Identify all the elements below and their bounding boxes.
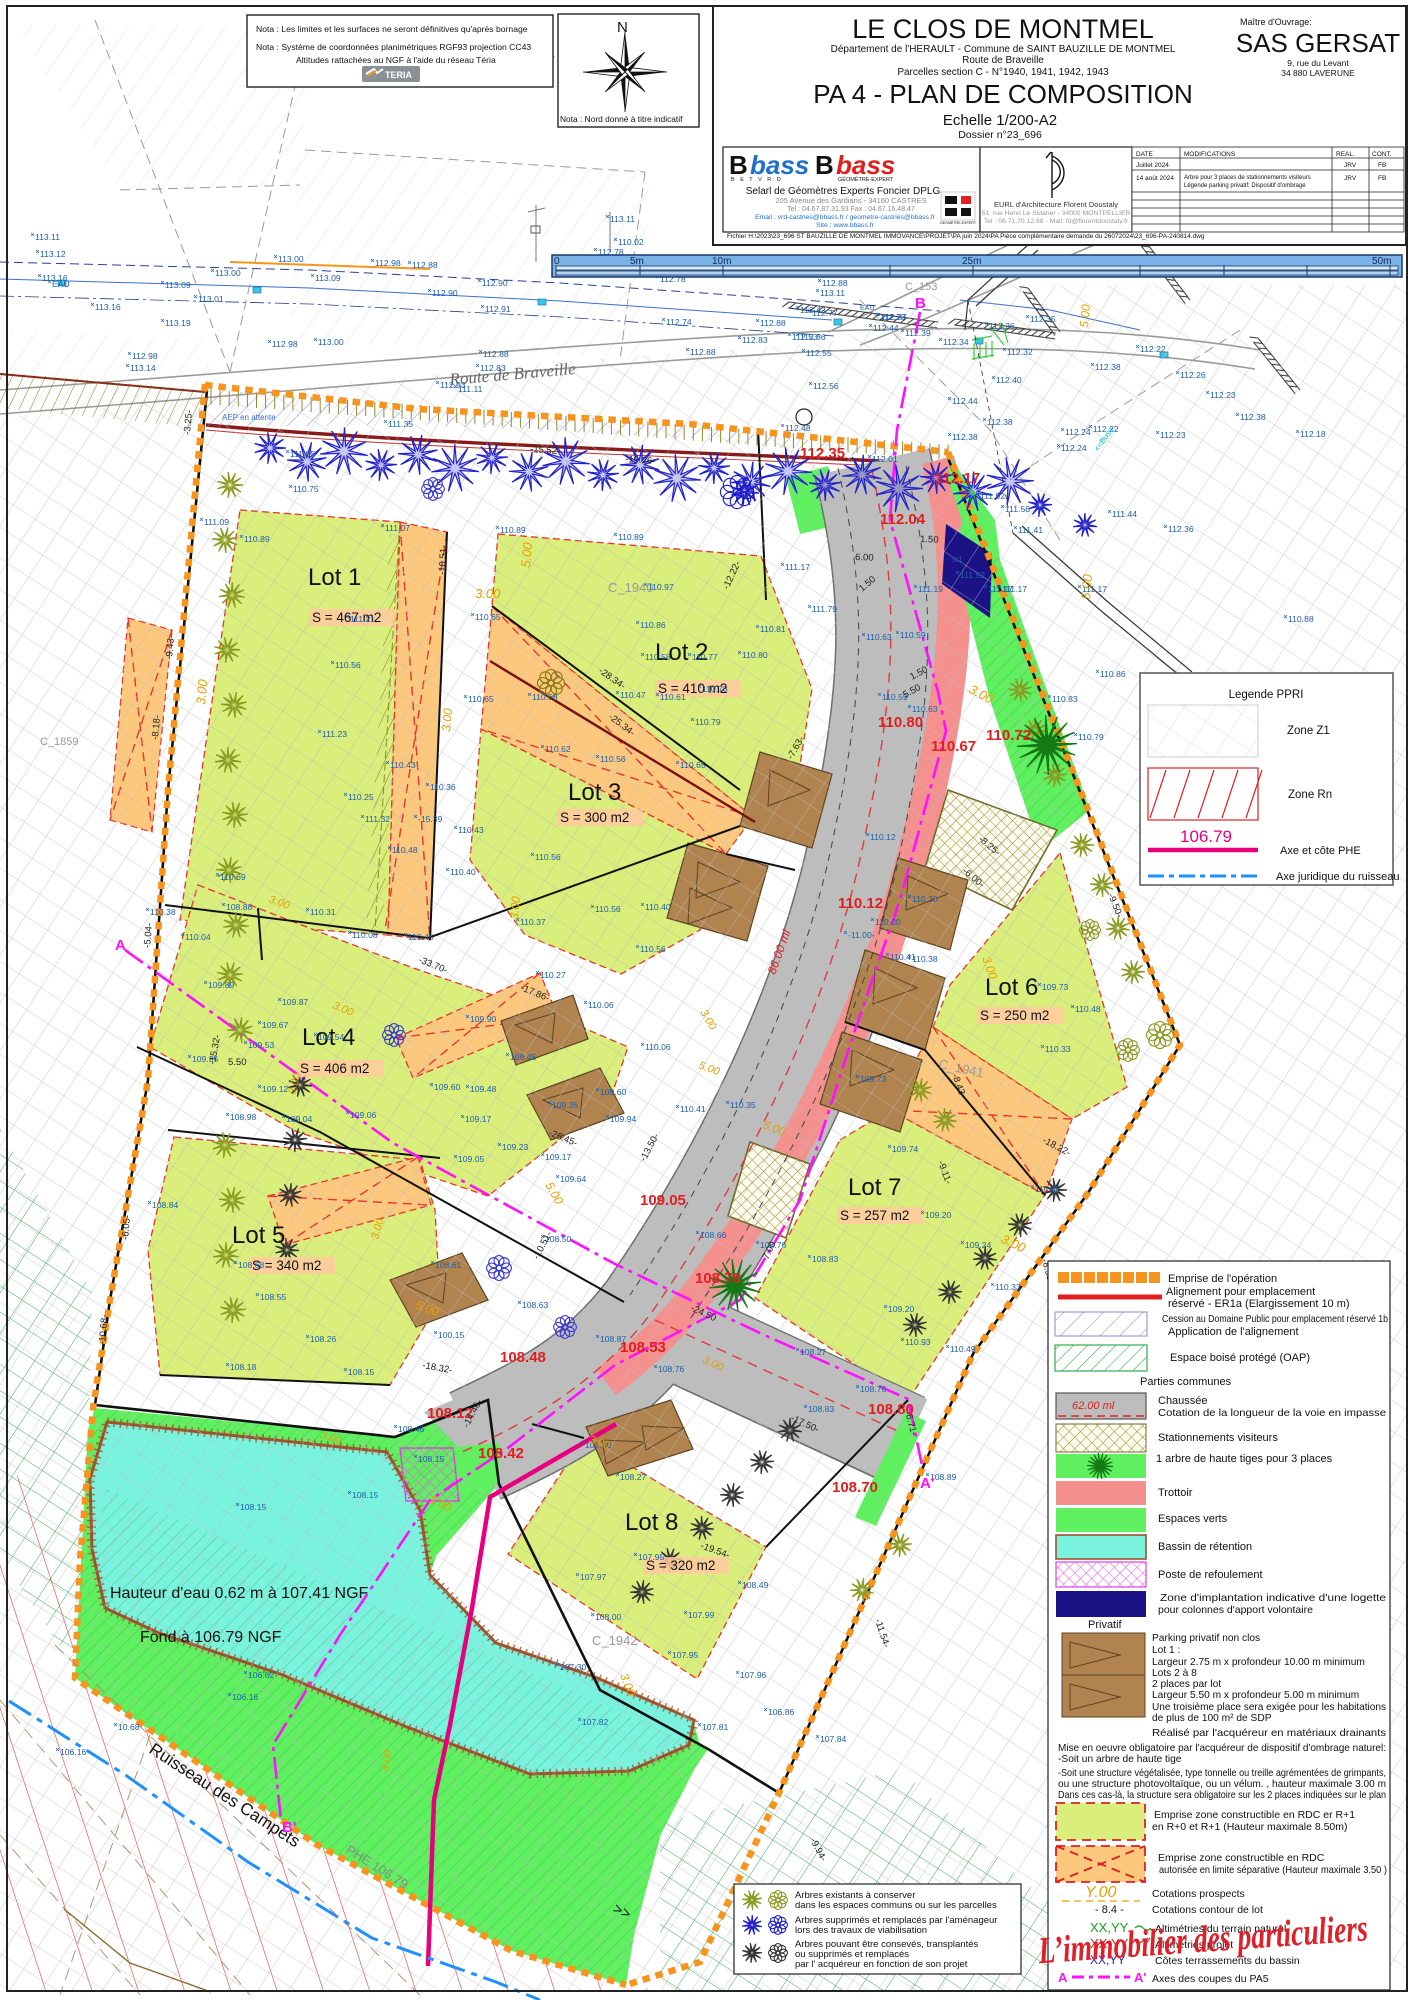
- svg-text:Parties communes: Parties communes: [1140, 1376, 1232, 1388]
- svg-text:Altitudes rattachées au NGF à: Altitudes rattachées au NGF à l'aide du …: [296, 55, 496, 65]
- svg-text:108.84: 108.84: [152, 1200, 179, 1210]
- svg-text:111.21: 111.21: [350, 614, 375, 624]
- svg-text:Juillet 2024: Juillet 2024: [1136, 162, 1169, 169]
- svg-text:Application de l'alignement: Application de l'alignement: [1168, 1326, 1299, 1338]
- svg-text:107.81: 107.81: [702, 1722, 729, 1732]
- svg-text:108.15: 108.15: [418, 1454, 445, 1464]
- svg-text:112.88: 112.88: [822, 278, 848, 288]
- svg-text:110.79: 110.79: [1078, 732, 1104, 742]
- svg-text:109.54: 109.54: [318, 1032, 345, 1042]
- svg-text:110.06: 110.06: [645, 1042, 671, 1052]
- svg-text:-Soit un arbre de haute tige: -Soit un arbre de haute tige: [1058, 1754, 1182, 1765]
- svg-text:110.56: 110.56: [640, 944, 666, 954]
- svg-text:REAL.: REAL.: [1336, 151, 1355, 158]
- svg-text:112.38: 112.38: [952, 432, 978, 442]
- svg-text:109.89: 109.89: [208, 980, 235, 990]
- svg-text:109.73: 109.73: [1042, 982, 1069, 992]
- svg-text:110.63: 110.63: [912, 704, 938, 714]
- svg-text:112.56: 112.56: [813, 381, 839, 391]
- svg-text:110.04: 110.04: [185, 932, 211, 942]
- svg-text:Legende PPRI: Legende PPRI: [1229, 689, 1304, 701]
- svg-text:111.56: 111.56: [1005, 504, 1030, 514]
- svg-text:EAU: EAU: [52, 279, 70, 289]
- svg-text:A: A: [1058, 1970, 1068, 1985]
- svg-text:108.27: 108.27: [620, 1472, 647, 1482]
- svg-text:-15.39: -15.39: [418, 814, 443, 824]
- svg-text:B: B: [729, 150, 748, 180]
- svg-text:108.61: 108.61: [435, 1260, 462, 1270]
- svg-text:S = 250 m2: S = 250 m2: [980, 1008, 1049, 1023]
- svg-text:Trottoir: Trottoir: [1158, 1487, 1193, 1499]
- svg-text:Fichier H:\2023\23_696 ST BAU: Fichier H:\2023\23_696 ST BAUZILLE DE MO…: [727, 233, 1205, 240]
- svg-text:de plus de 100 m² de SDP: de plus de 100 m² de SDP: [1152, 1713, 1272, 1724]
- svg-text:9, rue du Levant: 9, rue du Levant: [1287, 58, 1349, 68]
- svg-text:Privatif: Privatif: [1088, 1619, 1123, 1631]
- svg-text:111.44: 111.44: [1112, 509, 1137, 519]
- svg-text:107.82: 107.82: [582, 1717, 609, 1727]
- svg-text:110.27: 110.27: [540, 970, 566, 980]
- svg-text:111.11: 111.11: [458, 384, 483, 394]
- svg-text:108.68: 108.68: [238, 1260, 265, 1270]
- svg-text:Arbre pour 3 places de statio: Arbre pour 3 places de stationnements vi…: [1184, 175, 1311, 181]
- svg-text:110.58: 110.58: [532, 692, 558, 702]
- svg-text:113.11: 113.11: [820, 288, 845, 298]
- svg-text:-3.25-: -3.25-: [182, 410, 195, 436]
- svg-text:112.42: 112.42: [800, 305, 826, 315]
- svg-text:110.61: 110.61: [660, 692, 686, 702]
- svg-text:TERIA: TERIA: [385, 70, 413, 80]
- svg-text:113.11: 113.11: [35, 232, 60, 242]
- svg-text:Maître d'Ouvrage:: Maître d'Ouvrage:: [1240, 17, 1312, 27]
- svg-text:10.68: 10.68: [118, 1722, 140, 1732]
- svg-text:108.76: 108.76: [860, 1384, 887, 1394]
- svg-text:110.80: 110.80: [878, 714, 923, 731]
- svg-text:110.36: 110.36: [430, 782, 456, 792]
- svg-text:110.89: 110.89: [618, 532, 644, 542]
- svg-text:110.56: 110.56: [595, 904, 621, 914]
- svg-text:113.12: 113.12: [40, 249, 66, 259]
- svg-text:108.83: 108.83: [808, 1404, 835, 1414]
- svg-text:Zone Z1: Zone Z1: [1287, 725, 1330, 737]
- svg-text:SAS GERSAT: SAS GERSAT: [1236, 28, 1400, 58]
- svg-text:autorisée en limite séparative: autorisée en limite séparative (Hauteur …: [1159, 1865, 1387, 1876]
- svg-text:1.50: 1.50: [920, 534, 939, 546]
- svg-text:Tel : 06.71.70.12.68 - Mail: f: Tel : 06.71.70.12.68 - Mail: fd@florentd…: [984, 218, 1129, 225]
- svg-text:109.45: 109.45: [510, 1052, 537, 1062]
- svg-text:109.48: 109.48: [470, 1084, 497, 1094]
- svg-text:112.53: 112.53: [792, 332, 818, 342]
- svg-text:108.00: 108.00: [595, 1612, 622, 1622]
- svg-text:112.38: 112.38: [987, 417, 1013, 427]
- svg-text:51, rue Henri Le Sidaner - 340: 51, rue Henri Le Sidaner - 34000 MONTPEL…: [982, 210, 1131, 217]
- svg-text:113.01: 113.01: [198, 294, 224, 304]
- svg-text:108.18: 108.18: [230, 1362, 257, 1372]
- svg-text:110.48: 110.48: [392, 845, 418, 855]
- svg-text:110.89: 110.89: [244, 534, 270, 544]
- svg-text:ou une structure photovoltaïq: ou une structure photovoltaïque, ou un v…: [1058, 1779, 1386, 1790]
- svg-text:Lot 3: Lot 3: [568, 779, 621, 806]
- svg-text:110.56: 110.56: [535, 852, 561, 862]
- svg-text:108.98: 108.98: [230, 1112, 257, 1122]
- svg-text:108.70: 108.70: [832, 1479, 878, 1496]
- svg-text:108.66: 108.66: [700, 1230, 727, 1240]
- svg-text:110.33: 110.33: [995, 1282, 1021, 1292]
- svg-text:110.56: 110.56: [600, 754, 626, 764]
- svg-text:110.00: 110.00: [875, 917, 901, 927]
- svg-text:Lot 7: Lot 7: [848, 1174, 901, 1201]
- svg-text:108.88: 108.88: [226, 902, 253, 912]
- svg-text:bass: bass: [750, 150, 809, 180]
- svg-text:5.00: 5.00: [1078, 573, 1095, 600]
- svg-text:110.86: 110.86: [1100, 669, 1126, 679]
- svg-text:Y.00: Y.00: [1085, 1884, 1117, 1901]
- svg-text:14 août 2024: 14 août 2024: [1136, 175, 1174, 182]
- svg-text:108.46: 108.46: [398, 1424, 425, 1434]
- svg-text:Zone d'implantation indicative: Zone d'implantation indicative d'une log…: [1160, 1592, 1386, 1604]
- svg-text:Espaces verts: Espaces verts: [1158, 1513, 1228, 1525]
- svg-text:109.60: 109.60: [434, 1082, 461, 1092]
- svg-text:25m: 25m: [962, 256, 981, 267]
- svg-text:C_1940: C_1940: [608, 580, 654, 595]
- svg-text:110.56: 110.56: [335, 660, 361, 670]
- svg-text:Axes des coupes du PA5: Axes des coupes du PA5: [1152, 1973, 1269, 1985]
- svg-text:109.73: 109.73: [860, 1074, 887, 1084]
- svg-text:- 8.4 -: - 8.4 -: [1095, 1904, 1124, 1916]
- svg-text:111.09: 111.09: [204, 517, 229, 527]
- svg-text:Stationnements visiteurs: Stationnements visiteurs: [1158, 1432, 1278, 1444]
- svg-text:110.49: 110.49: [950, 1344, 976, 1354]
- svg-text:Fond à 106.79 NGF: Fond à 106.79 NGF: [140, 1629, 282, 1646]
- svg-text:JRV: JRV: [1344, 175, 1357, 182]
- svg-text:112.36: 112.36: [1168, 524, 1194, 534]
- svg-text:110.88: 110.88: [1288, 614, 1314, 624]
- svg-text:N: N: [617, 19, 628, 36]
- svg-text:109.17: 109.17: [465, 1114, 492, 1124]
- svg-text:108.55: 108.55: [260, 1292, 287, 1302]
- svg-text:Emprise de l'opération: Emprise de l'opération: [1168, 1273, 1277, 1285]
- svg-text:C_1859: C_1859: [40, 736, 79, 748]
- svg-text:112.26: 112.26: [989, 321, 1015, 331]
- svg-text:107.99: 107.99: [688, 1610, 715, 1620]
- svg-text:112.23: 112.23: [1210, 390, 1236, 400]
- svg-text:112.44: 112.44: [952, 396, 978, 406]
- svg-text:112.38: 112.38: [1095, 362, 1121, 372]
- svg-text:-11.00-: -11.00-: [848, 930, 875, 940]
- svg-text:109.53: 109.53: [248, 1040, 275, 1050]
- svg-text:Zone Rn: Zone Rn: [1288, 789, 1332, 801]
- svg-text:GÉOMÈTRE-EXPERT: GÉOMÈTRE-EXPERT: [838, 176, 894, 183]
- svg-text:GEOMETRE-EXPERT: GEOMETRE-EXPERT: [940, 221, 977, 225]
- svg-text:112.88: 112.88: [412, 260, 438, 270]
- svg-text:-5.04-: -5.04-: [142, 923, 155, 949]
- svg-text:Axe et côte PHE: Axe et côte PHE: [1280, 845, 1361, 857]
- svg-text:110.25: 110.25: [348, 792, 374, 802]
- svg-text:Nota : Les limites et les surf: Nota : Les limites et les surfaces ne se…: [256, 24, 528, 34]
- svg-text:DATE: DATE: [1136, 151, 1154, 158]
- svg-text:Tel : 04.67.87.31.93 Fax : 04: Tel : 04.67.87.31.93 Fax : 04.67.16.48.4…: [787, 206, 915, 213]
- svg-text:110.78: 110.78: [702, 684, 728, 694]
- svg-text:112.83: 112.83: [742, 335, 768, 345]
- svg-text:C_1942: C_1942: [592, 1633, 638, 1648]
- svg-text:113.00: 113.00: [278, 254, 304, 264]
- svg-text:110.12: 110.12: [838, 895, 883, 912]
- svg-text:110.65: 110.65: [475, 612, 501, 622]
- svg-text:108.49: 108.49: [742, 1580, 769, 1590]
- svg-text:112.98: 112.98: [272, 339, 298, 349]
- svg-text:112.83: 112.83: [480, 363, 506, 373]
- svg-text:B': B': [282, 1819, 296, 1836]
- svg-text:110.86: 110.86: [640, 620, 666, 630]
- svg-text:109.87: 109.87: [282, 997, 309, 1007]
- svg-text:205 Avenue des Gardians - 3416: 205 Avenue des Gardians - 34160 CASTRES: [775, 196, 926, 205]
- svg-text:Hauteur d'eau 0.62 m à 107.41: Hauteur d'eau 0.62 m à 107.41 NGF: [110, 1585, 369, 1602]
- svg-text:110.58: 110.58: [645, 652, 671, 662]
- svg-text:st1: st1: [952, 555, 963, 564]
- svg-text:111.92: 111.92: [980, 491, 1005, 501]
- svg-text:110.30: 110.30: [912, 894, 938, 904]
- svg-text:110.67: 110.67: [931, 738, 976, 755]
- svg-text:111.92: 111.92: [960, 570, 985, 580]
- svg-text:112.88: 112.88: [760, 318, 786, 328]
- svg-text:112.44: 112.44: [873, 323, 899, 333]
- svg-text:113.14: 113.14: [130, 363, 156, 373]
- svg-text:Cotation de la longueur de la: Cotation de la longueur de la voie en im…: [1158, 1408, 1386, 1419]
- svg-text:110.93: 110.93: [905, 1337, 931, 1347]
- svg-text:112.90: 112.90: [432, 288, 458, 298]
- svg-text:111.79: 111.79: [812, 604, 837, 614]
- svg-text:5m: 5m: [630, 256, 644, 267]
- svg-text:110.12: 110.12: [870, 832, 896, 842]
- svg-text:109.12: 109.12: [262, 1084, 289, 1094]
- svg-text:0: 0: [554, 256, 560, 267]
- svg-text:110.65: 110.65: [468, 694, 494, 704]
- svg-text:112.88: 112.88: [483, 349, 509, 359]
- svg-text:Bassin de rétention: Bassin de rétention: [1158, 1541, 1252, 1553]
- svg-text:50m: 50m: [1372, 256, 1391, 267]
- svg-text:107.95: 107.95: [672, 1650, 699, 1660]
- svg-text:112.40: 112.40: [996, 375, 1022, 385]
- svg-text:110.47: 110.47: [1035, 1184, 1061, 1194]
- svg-text:Email : vrd-castries@bbass.fr: Email : vrd-castries@bbass.fr / geometre…: [755, 214, 936, 221]
- svg-text:108.48: 108.48: [500, 1349, 546, 1366]
- svg-text:LE CLOS DE MONTMEL: LE CLOS DE MONTMEL: [852, 14, 1154, 44]
- svg-text:110.77: 110.77: [692, 652, 718, 662]
- svg-text:110.02: 110.02: [618, 237, 644, 247]
- svg-text:111.32: 111.32: [365, 814, 390, 824]
- svg-text:-6.05-: -6.05-: [120, 1215, 133, 1241]
- svg-text:Axe juridique du ruisseau: Axe juridique du ruisseau: [1276, 871, 1400, 883]
- svg-text:3.00: 3.00: [193, 678, 210, 705]
- svg-text:Parcelles section C - N°1940,: Parcelles section C - N°1940, 1941, 1942…: [897, 67, 1109, 78]
- svg-text:Parking privatif non clos: Parking privatif non clos: [1152, 1633, 1260, 1644]
- svg-text:112.24: 112.24: [1065, 427, 1091, 437]
- svg-text:112.17: 112.17: [935, 470, 980, 487]
- svg-text:Lots 2 à 8: Lots 2 à 8: [1152, 1668, 1197, 1679]
- svg-text:111.35: 111.35: [388, 419, 413, 429]
- svg-text:106.62: 106.62: [248, 1670, 275, 1680]
- svg-text:112.24: 112.24: [1061, 443, 1087, 453]
- svg-text:109.60: 109.60: [600, 1087, 627, 1097]
- svg-text:3.00: 3.00: [507, 895, 523, 920]
- svg-text:109.64: 109.64: [560, 1174, 587, 1184]
- svg-text:110.45: 110.45: [408, 932, 434, 942]
- svg-text:110.38: 110.38: [912, 954, 938, 964]
- svg-text:110.62: 110.62: [545, 744, 571, 754]
- svg-text:Cotations contour de lot: Cotations contour de lot: [1152, 1904, 1263, 1916]
- svg-text:S = 300 m2: S = 300 m2: [560, 810, 629, 825]
- svg-text:110.83: 110.83: [1052, 694, 1078, 704]
- svg-text:en R+0 et R+1 (Hauteur maximal: en R+0 et R+1 (Hauteur maximale 8.50m): [1152, 1821, 1348, 1833]
- svg-text:1 arbre de haute tiges pour 3: 1 arbre de haute tiges pour 3 places: [1156, 1453, 1333, 1465]
- svg-text:112.22: 112.22: [1140, 344, 1166, 354]
- svg-text:109.35: 109.35: [552, 1100, 579, 1110]
- svg-text:Mise en oeuvre obligatoire par: Mise en oeuvre obligatoire par l'acquére…: [1058, 1743, 1386, 1754]
- svg-text:-15.52-: -15.52-: [530, 444, 561, 457]
- svg-text:B: B: [915, 295, 926, 312]
- svg-text:110.63: 110.63: [866, 632, 892, 642]
- svg-text:107.30: 107.30: [560, 1662, 587, 1672]
- svg-text:112.39: 112.39: [905, 328, 931, 338]
- svg-text:108.63: 108.63: [522, 1300, 549, 1310]
- svg-text:106.86: 106.86: [768, 1707, 795, 1717]
- svg-text:110.40: 110.40: [645, 902, 671, 912]
- svg-text:108.27: 108.27: [800, 1347, 827, 1357]
- svg-text:112.32: 112.32: [1007, 347, 1033, 357]
- svg-text:EURL d'Architecture Florent Do: EURL d'Architecture Florent Doustaly: [994, 200, 1118, 209]
- svg-text:110.43: 110.43: [458, 825, 484, 835]
- svg-text:113.16: 113.16: [95, 302, 121, 312]
- svg-text:110.72: 110.72: [986, 727, 1031, 744]
- svg-text:110.40: 110.40: [450, 867, 476, 877]
- svg-text:Dossier n°23_696: Dossier n°23_696: [958, 129, 1042, 141]
- svg-text:109.05: 109.05: [458, 1154, 485, 1164]
- svg-text:106.16: 106.16: [232, 1692, 259, 1702]
- svg-text:3.00: 3.00: [439, 707, 455, 732]
- svg-text:108.78: 108.78: [695, 1270, 741, 1287]
- svg-text:108.26: 108.26: [310, 1334, 337, 1344]
- svg-text:110.41: 110.41: [680, 1104, 706, 1114]
- svg-text:Route de Braveille: Route de Braveille: [962, 55, 1044, 66]
- svg-text:-9.43-: -9.43-: [164, 635, 177, 661]
- svg-text:Lot 1 :: Lot 1 :: [1152, 1645, 1180, 1656]
- svg-text:Emprise zone constructible en: Emprise zone constructible en RDC: [1158, 1852, 1325, 1864]
- svg-text:AEP en attente: AEP en attente: [222, 413, 276, 422]
- svg-text:112.88: 112.88: [690, 347, 716, 357]
- svg-text:109.74: 109.74: [892, 1144, 919, 1154]
- svg-text:MODIFICATIONS: MODIFICATIONS: [1184, 151, 1236, 158]
- svg-text:110.47: 110.47: [620, 690, 646, 700]
- svg-text:FB: FB: [1378, 162, 1386, 169]
- svg-text:10m: 10m: [712, 256, 731, 267]
- svg-text:111.19: 111.19: [918, 584, 943, 594]
- svg-text:111.23: 111.23: [322, 729, 347, 739]
- svg-text:110.59: 110.59: [900, 630, 926, 640]
- svg-text:112.48: 112.48: [785, 423, 811, 433]
- svg-text:pour colonnes d'apport volonta: pour colonnes d'apport volontaire: [1158, 1604, 1313, 1616]
- svg-text:-19.26-: -19.26-: [625, 454, 656, 467]
- svg-text:108.87: 108.87: [600, 1334, 627, 1344]
- svg-text:S = 257 m2: S = 257 m2: [840, 1208, 909, 1223]
- svg-text:S = 406 m2: S = 406 m2: [300, 1061, 369, 1076]
- svg-text:Lot 5: Lot 5: [232, 1222, 285, 1249]
- svg-text:100.15: 100.15: [438, 1330, 465, 1340]
- svg-text:109.04: 109.04: [286, 1114, 313, 1124]
- svg-text:107.97: 107.97: [580, 1572, 607, 1582]
- svg-text:-10.51-: -10.51-: [437, 545, 450, 576]
- svg-text:Réalisé par l'acquéreur en mat: Réalisé par l'acquéreur en matériaux dra…: [1152, 1728, 1386, 1739]
- svg-text:dans les espaces communs ou su: dans les espaces communs ou sur les parc…: [795, 1900, 997, 1911]
- svg-text:112.35: 112.35: [1030, 314, 1056, 324]
- svg-text:111.07: 111.07: [385, 523, 410, 533]
- svg-text:Alignement pour emplacement: Alignement pour emplacement: [1166, 1286, 1315, 1298]
- svg-text:113.19: 113.19: [165, 318, 191, 328]
- svg-text:109.67: 109.67: [262, 1020, 289, 1030]
- svg-text:108.76: 108.76: [658, 1364, 685, 1374]
- svg-text:109.05: 109.05: [640, 1192, 686, 1209]
- svg-text:110.37: 110.37: [520, 917, 546, 927]
- svg-text:FB: FB: [1378, 175, 1386, 182]
- svg-text:109.23: 109.23: [502, 1142, 529, 1152]
- svg-text:C_153: C_153: [905, 281, 937, 293]
- svg-text:Lot 8: Lot 8: [625, 1509, 678, 1536]
- svg-text:110.48: 110.48: [1075, 1004, 1101, 1014]
- svg-text:111.17: 111.17: [988, 584, 1013, 594]
- svg-text:A: A: [115, 937, 126, 954]
- svg-text:113.09: 113.09: [315, 273, 341, 283]
- svg-text:107.84: 107.84: [820, 1734, 847, 1744]
- svg-text:109.17: 109.17: [545, 1152, 572, 1162]
- svg-text:112.98: 112.98: [375, 258, 401, 268]
- svg-text:110.81: 110.81: [760, 624, 786, 634]
- svg-text:109.20: 109.20: [925, 1210, 952, 1220]
- svg-text:5.50: 5.50: [228, 1057, 247, 1068]
- svg-text:110.35: 110.35: [730, 1100, 756, 1110]
- svg-text:5.00: 5.00: [518, 541, 535, 568]
- svg-text:EAU: EAU: [860, 305, 874, 312]
- svg-text:112.37: 112.37: [881, 312, 907, 322]
- svg-text:Dans ces cas-là, la structure: Dans ces cas-là, la structure sera oblig…: [1058, 1790, 1386, 1801]
- svg-text:111.95: 111.95: [290, 449, 315, 459]
- svg-text:110.33: 110.33: [1045, 1044, 1071, 1054]
- svg-text:109.24: 109.24: [965, 1240, 992, 1250]
- svg-text:112.38: 112.38: [1240, 412, 1266, 422]
- svg-text:Cession au Domaine Public pour: Cession au Domaine Public pour emplaceme…: [1162, 1314, 1388, 1325]
- svg-text:107.95: 107.95: [638, 1552, 665, 1562]
- svg-text:Largeur 5.50 m x profondeur 5.: Largeur 5.50 m x profondeur 5.00 m minim…: [1152, 1690, 1359, 1701]
- svg-text:113.00: 113.00: [318, 337, 344, 347]
- svg-text:112.34: 112.34: [943, 337, 969, 347]
- svg-text:B E T V R D: B E T V R D: [731, 177, 783, 183]
- svg-text:108.15: 108.15: [240, 1502, 267, 1512]
- svg-text:110.75: 110.75: [293, 484, 319, 494]
- svg-text:112.74: 112.74: [666, 317, 692, 327]
- svg-text:110.69: 110.69: [220, 872, 246, 882]
- svg-text:Légende parking privatif: Disp: Légende parking privatif: Dispositif d'o…: [1184, 183, 1306, 189]
- svg-text:Département de l'HERAULT - Com: Département de l'HERAULT - Commune de SA…: [831, 44, 1176, 55]
- svg-text:Nota : Système de coordonnées: Nota : Système de coordonnées planimétri…: [256, 42, 531, 52]
- svg-text:A': A': [1134, 1970, 1146, 1985]
- svg-text:Echelle 1/200-A2: Echelle 1/200-A2: [943, 112, 1057, 129]
- svg-text:-8.18-: -8.18-: [150, 715, 163, 741]
- svg-text:Lot 1: Lot 1: [308, 564, 361, 591]
- svg-text:108.15: 108.15: [352, 1490, 379, 1500]
- svg-text:107.96: 107.96: [740, 1670, 767, 1680]
- svg-text:112.91: 112.91: [485, 304, 511, 314]
- svg-text:110.43: 110.43: [390, 760, 416, 770]
- svg-text:Chaussée: Chaussée: [1158, 1395, 1208, 1407]
- svg-text:62.00 ml: 62.00 ml: [1072, 1400, 1115, 1412]
- svg-text:A': A': [920, 1475, 934, 1492]
